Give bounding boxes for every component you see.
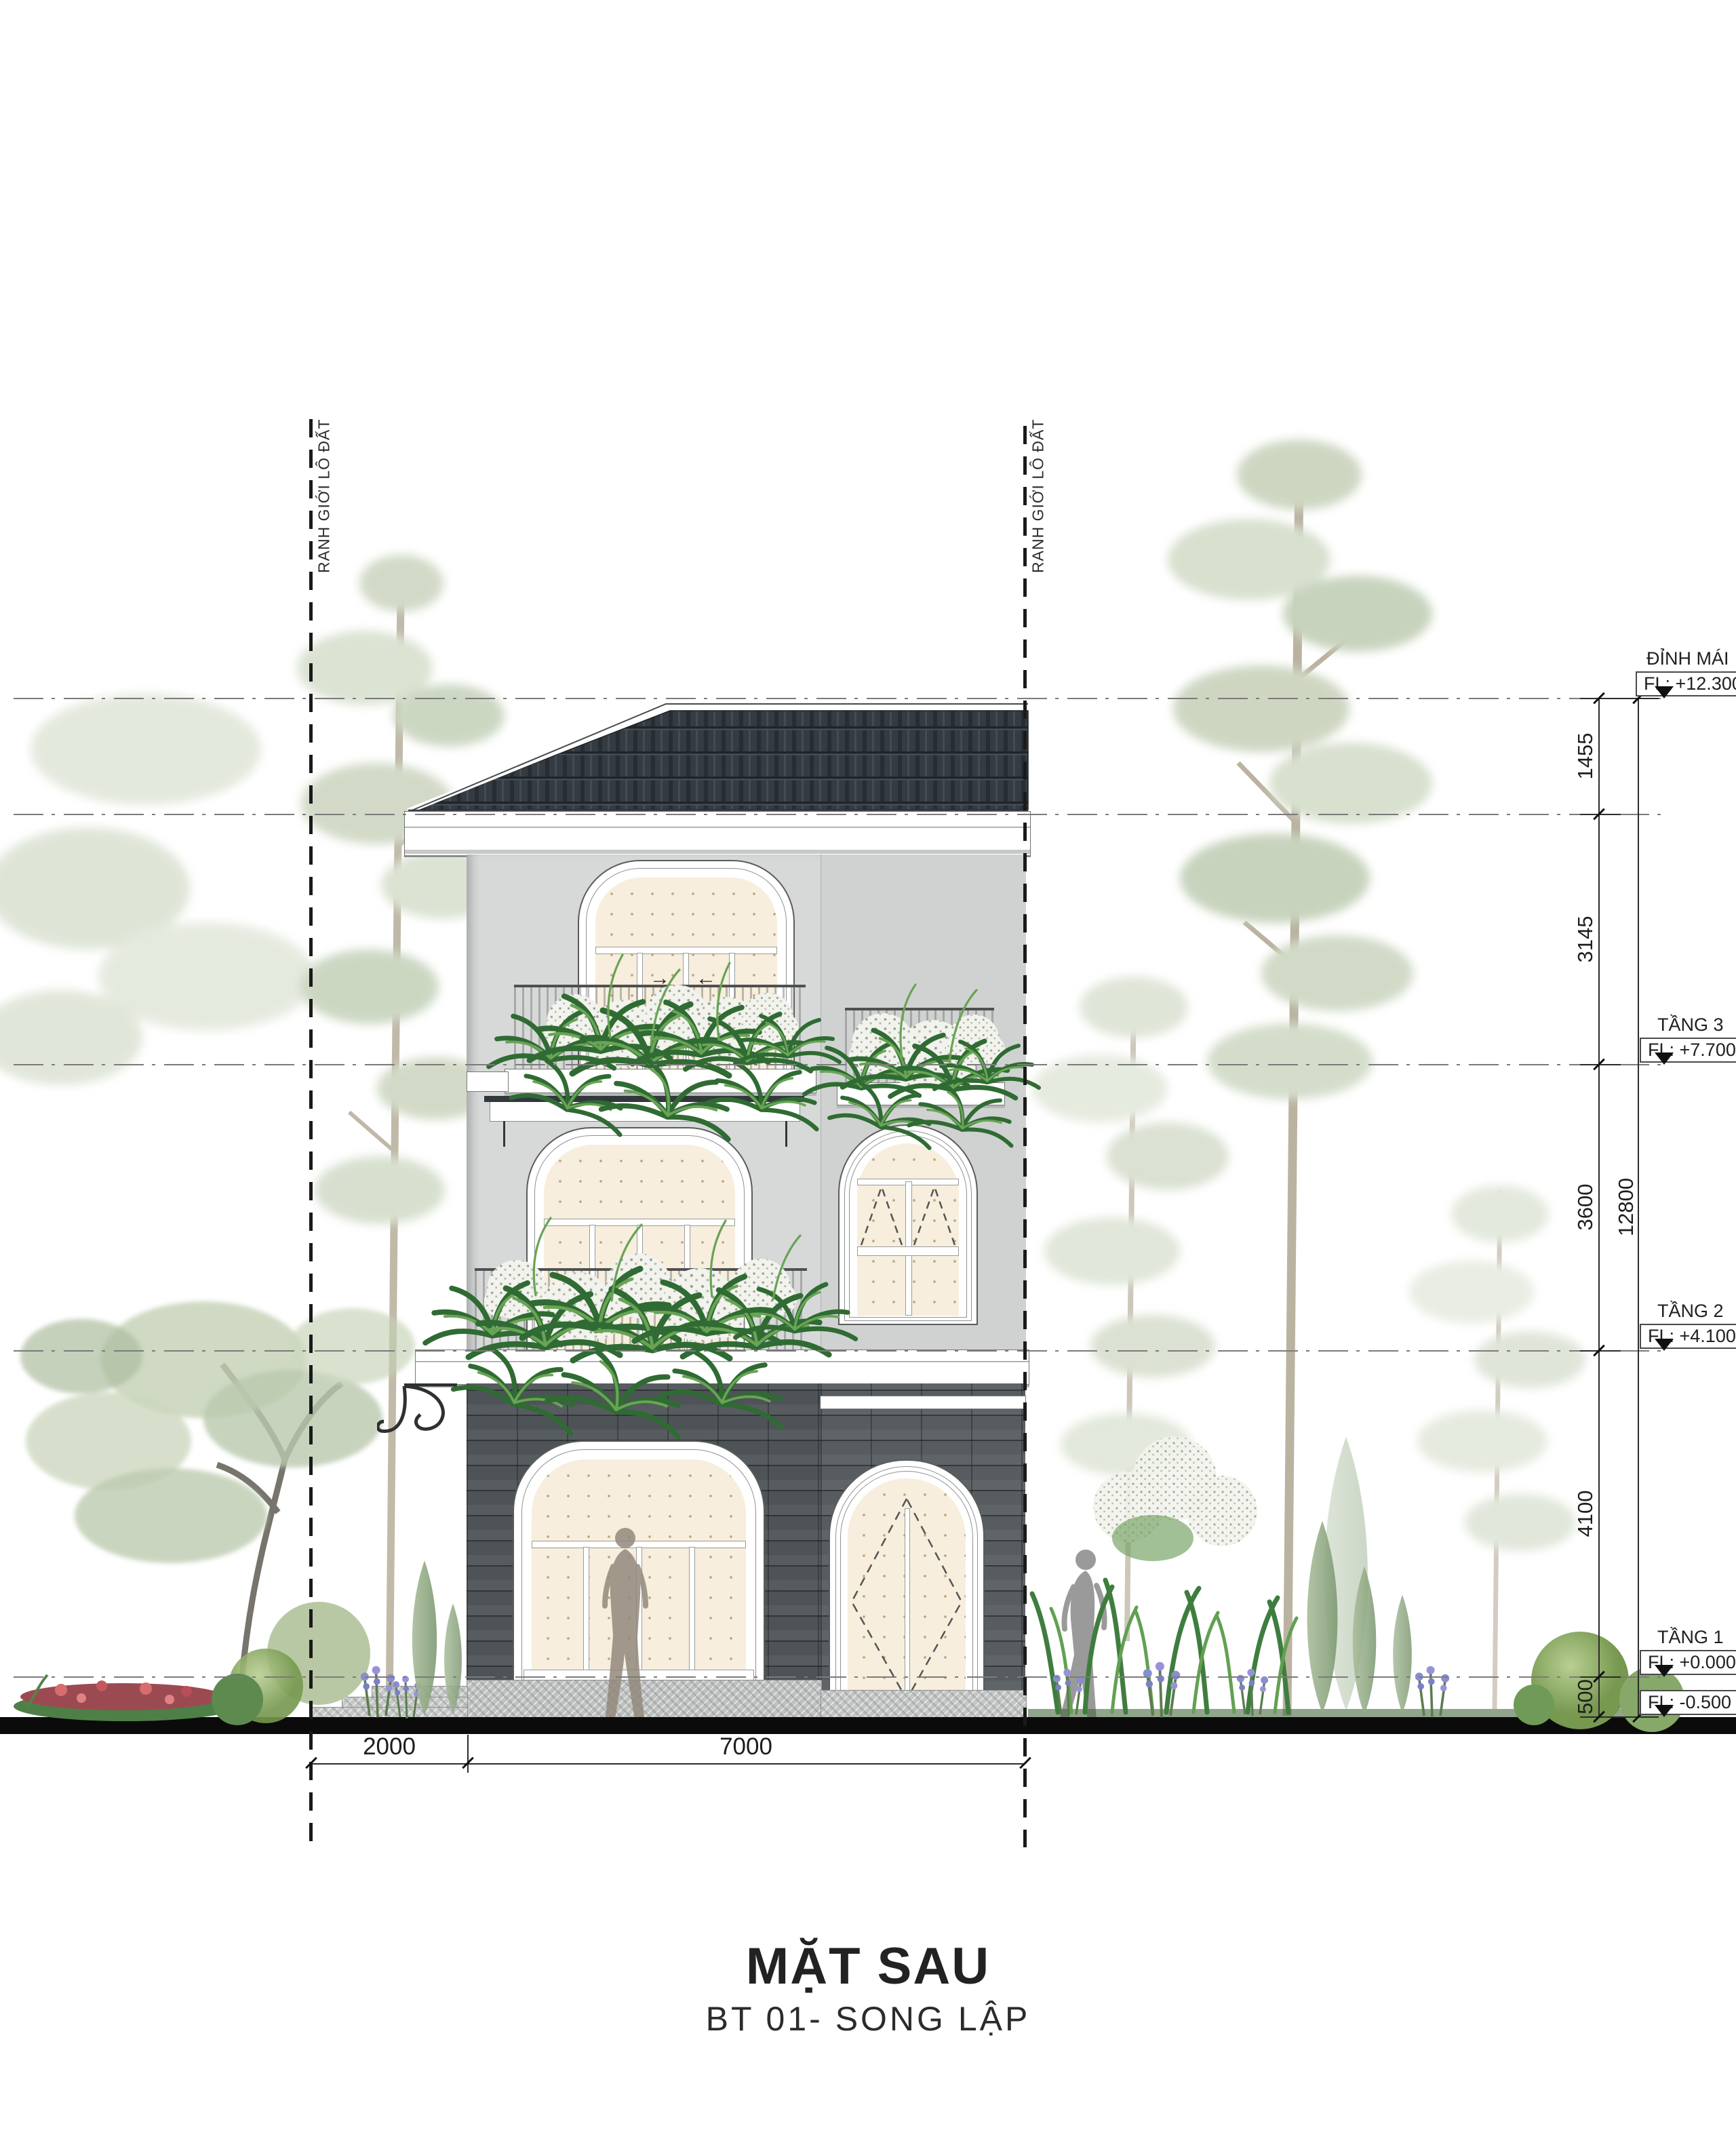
level-line-eave (14, 814, 1670, 815)
level-name-floor1: TẦNG 1 (1657, 1627, 1724, 1648)
sheet-title: MẶT SAU (746, 1937, 990, 1996)
dim-setback-2000: 2000 (363, 1733, 416, 1760)
dim-segment-3145: 3145 (1573, 916, 1598, 963)
topiary-left (212, 1560, 462, 1725)
level-marker-icon (1655, 1665, 1674, 1677)
dim-total-12800: 12800 (1614, 1178, 1638, 1236)
cypress-right (1307, 1437, 1684, 1732)
dim-extension-house-left (467, 1735, 469, 1773)
boundary-label-right: RANH GIỚI LÔ ĐẤT (1029, 419, 1048, 573)
boundary-label-left: RANH GIỚI LÔ ĐẤT (315, 419, 334, 573)
level-marker-icon (1655, 1052, 1674, 1065)
boundary-line-left (309, 419, 313, 1847)
dim-line-bottom (311, 1763, 1025, 1765)
dim-segment-1455: 1455 (1573, 733, 1598, 780)
elevation-sheet: → ← → ← (0, 0, 1736, 2145)
foreground-garden (0, 0, 1736, 2145)
level-line-floor3 (14, 1064, 1670, 1065)
level-line-floor2 (14, 1350, 1670, 1352)
sheet-subtitle: BT 01- SONG LẬP (706, 1999, 1031, 2039)
level-name-roof: ĐỈNH MÁI (1646, 648, 1729, 669)
level-fl-roof: FL: +12.300 (1636, 671, 1736, 696)
level-marker-icon (1655, 686, 1674, 698)
dim-segment-3600: 3600 (1573, 1184, 1598, 1231)
dim-segment-4100: 4100 (1573, 1491, 1598, 1537)
dim-chain-inner (1598, 698, 1600, 1717)
level-name-floor2: TẦNG 2 (1657, 1301, 1724, 1322)
dim-width-7000: 7000 (719, 1733, 772, 1760)
dim-segment-500: 500 (1573, 1679, 1598, 1714)
flower-bed-left (14, 1675, 237, 1721)
level-line-floor1 (14, 1676, 1670, 1678)
boundary-line-right (1023, 426, 1027, 1847)
level-line-roof (14, 698, 1670, 699)
level-marker-icon (1655, 1705, 1674, 1717)
level-name-floor3: TẦNG 3 (1657, 1015, 1724, 1036)
level-marker-icon (1655, 1339, 1674, 1351)
